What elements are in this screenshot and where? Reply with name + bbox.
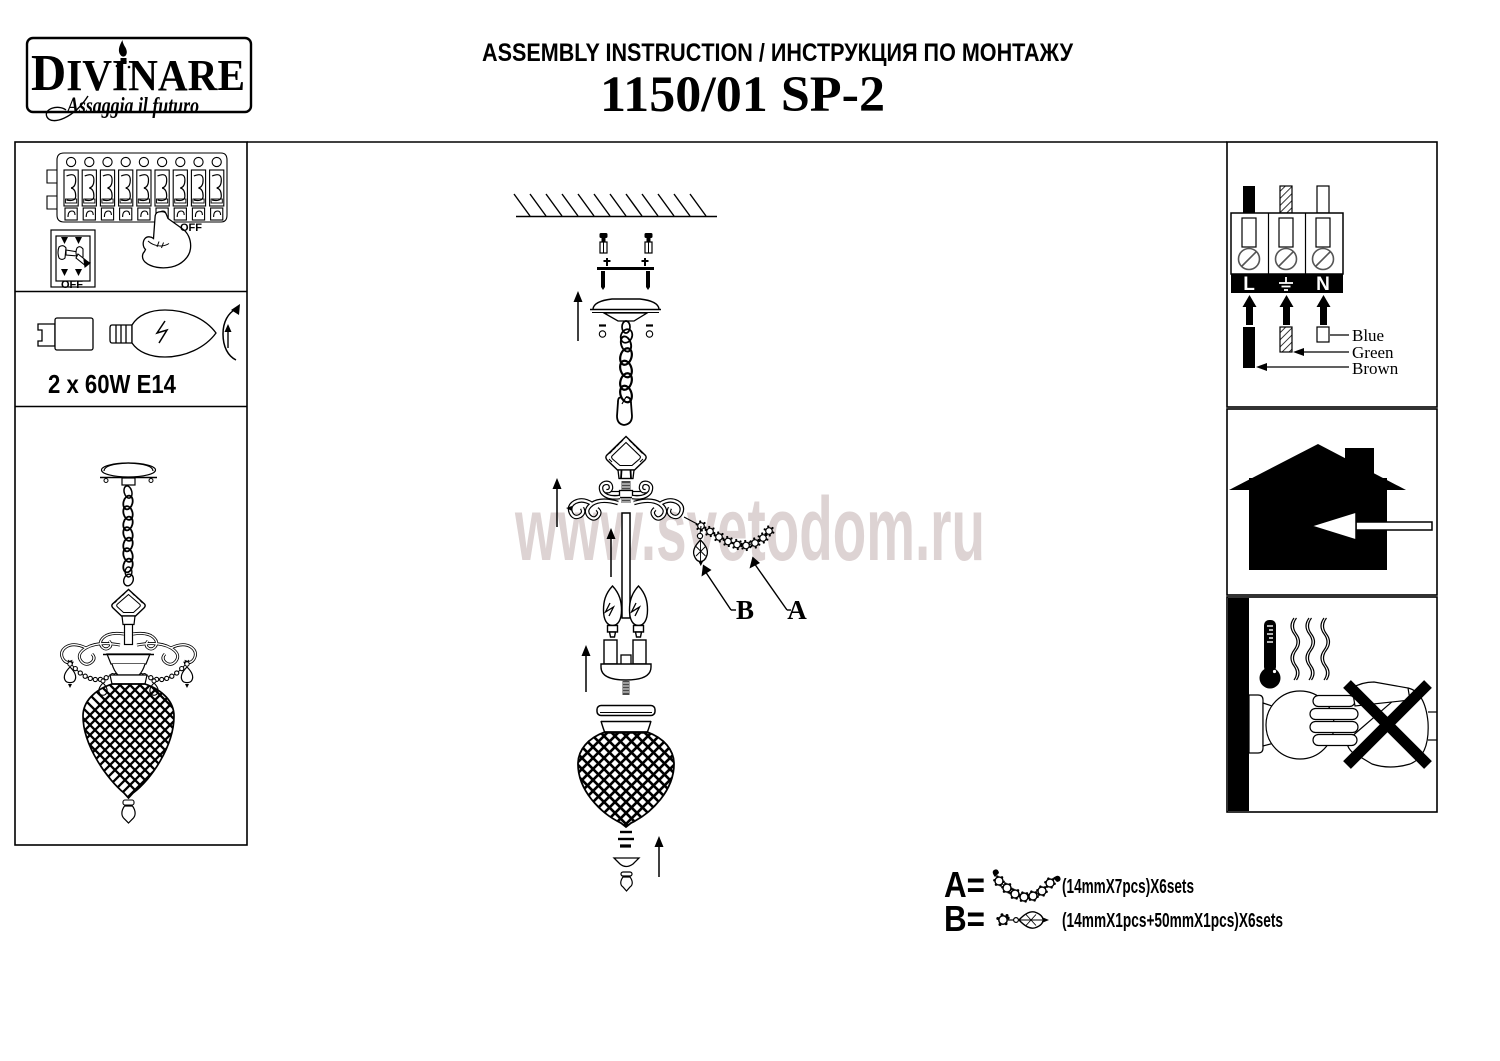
svg-text:B: B bbox=[736, 595, 754, 625]
svg-text:B=: B= bbox=[944, 898, 985, 939]
svg-text:OFF: OFF bbox=[61, 279, 83, 291]
svg-text:ASSEMBLY INSTRUCTION / ИНСТРУК: ASSEMBLY INSTRUCTION / ИНСТРУКЦИЯ ПО МОН… bbox=[482, 39, 1073, 67]
svg-text:OFF: OFF bbox=[180, 222, 202, 234]
svg-text:N: N bbox=[1316, 274, 1330, 295]
svg-text:(14mmX1pcs+50mmX1pcs)X6sets: (14mmX1pcs+50mmX1pcs)X6sets bbox=[1062, 910, 1283, 932]
svg-text:Brown: Brown bbox=[1352, 359, 1399, 378]
svg-text:www.svetodom.ru: www.svetodom.ru bbox=[514, 480, 985, 580]
svg-text:Assaggia il futuro: Assaggia il futuro bbox=[65, 93, 199, 118]
svg-text:2 x 60W E14: 2 x 60W E14 bbox=[48, 369, 176, 399]
svg-text:(14mmX7pcs)X6sets: (14mmX7pcs)X6sets bbox=[1062, 876, 1194, 898]
svg-text:L: L bbox=[1243, 274, 1255, 295]
svg-text:A: A bbox=[787, 595, 807, 625]
svg-text:1150/01 SP-2: 1150/01 SP-2 bbox=[600, 67, 885, 123]
